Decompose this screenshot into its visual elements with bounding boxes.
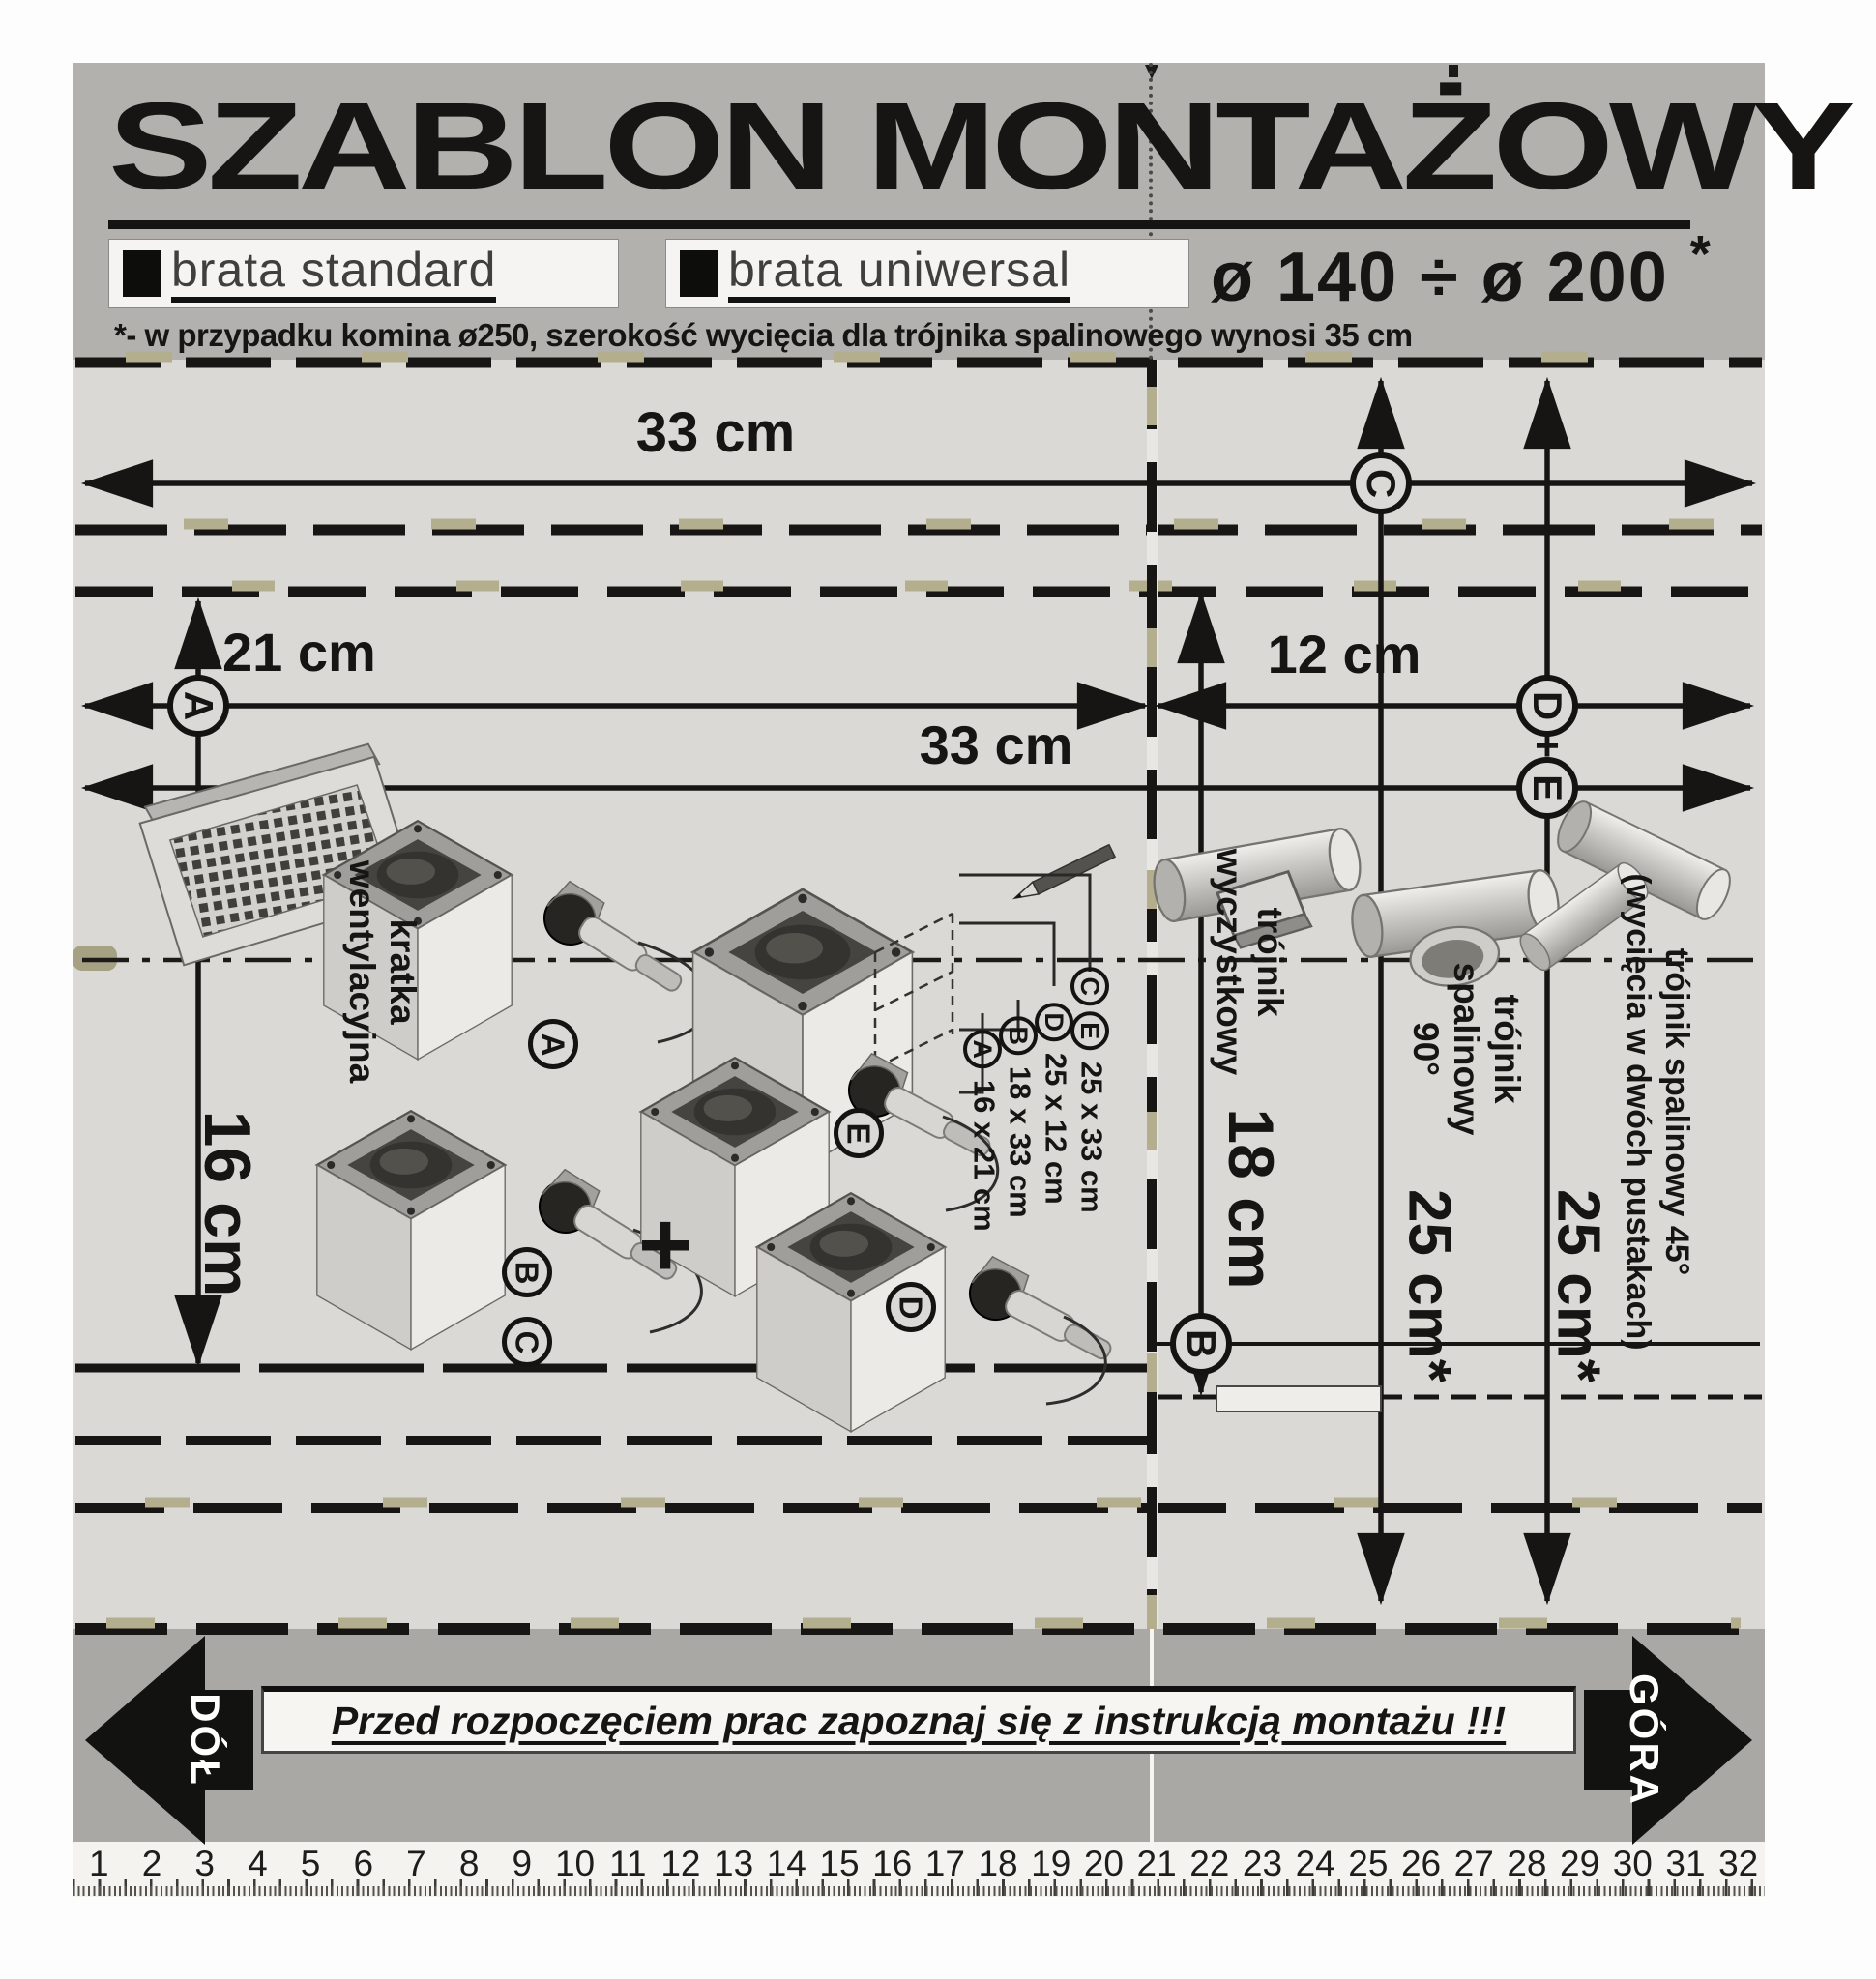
ruler-number: 25 bbox=[1342, 1843, 1395, 1883]
ruler-number: 27 bbox=[1448, 1843, 1501, 1883]
brand-logo-square bbox=[123, 250, 161, 297]
ruler-number: 31 bbox=[1659, 1843, 1713, 1883]
circled-letter: E bbox=[1527, 774, 1568, 801]
warning-banner: Przed rozpoczęciem prac zapoznaj się z i… bbox=[261, 1686, 1576, 1754]
cleanout-tee-label: trójnikwyczystkowy bbox=[1209, 849, 1290, 1075]
diameter-asterisk: * bbox=[1690, 225, 1713, 283]
circled-letter: A bbox=[538, 1033, 570, 1056]
ruler-numbers: 1234567891011121314151617181920212223242… bbox=[73, 1843, 1765, 1883]
cleanout-slot bbox=[1216, 1386, 1381, 1411]
footnote: *- w przypadku komina ø250, szerokość wy… bbox=[114, 317, 1413, 354]
ruler-number: 8 bbox=[443, 1843, 496, 1883]
ruler-number: 6 bbox=[337, 1843, 390, 1883]
angle-grinder-icon bbox=[960, 1254, 1123, 1377]
dimension-tee45-height: 25 cm* bbox=[1544, 1189, 1613, 1382]
ruler-number: 7 bbox=[390, 1843, 443, 1883]
ruler-number: 29 bbox=[1553, 1843, 1606, 1883]
circled-letter: C bbox=[1070, 967, 1109, 1005]
dimension-mid-width: 33 cm bbox=[851, 713, 1141, 776]
dimension-grille-height: 16 cm bbox=[190, 1111, 265, 1297]
circled-letter: D bbox=[1035, 1003, 1073, 1041]
dimension-top-width: 33 cm bbox=[522, 400, 909, 465]
mounting-template-sheet: SZABLON MONTAŻOWY brata standard brata u… bbox=[0, 0, 1876, 1979]
ruler-number: 3 bbox=[178, 1843, 231, 1883]
dimension-grille-width: 21 cm bbox=[222, 621, 376, 684]
up-arrow-label: GÓRA bbox=[1621, 1673, 1667, 1807]
block-label-e: E bbox=[834, 1108, 884, 1158]
ruler-number: 28 bbox=[1501, 1843, 1554, 1883]
circled-letter: B bbox=[512, 1261, 543, 1284]
circle-marker-b: B bbox=[1170, 1313, 1232, 1375]
brand-box-standard: brata standard bbox=[108, 239, 619, 308]
circled-letter: C bbox=[512, 1330, 543, 1353]
circled-letter: E bbox=[1070, 1011, 1109, 1050]
ruler-number: 24 bbox=[1289, 1843, 1342, 1883]
ruler-number: 20 bbox=[1077, 1843, 1130, 1883]
dimension-cleanout-height: 18 cm bbox=[1215, 1108, 1288, 1289]
block-label-c: C bbox=[502, 1317, 552, 1367]
brand-logo-square bbox=[680, 250, 718, 297]
circled-letter: D bbox=[895, 1295, 927, 1319]
cut-size-label: D 25 x 12 cm bbox=[1035, 1000, 1073, 1204]
brand-standard-label: brata standard bbox=[171, 245, 496, 304]
ruler-number: 19 bbox=[1024, 1843, 1077, 1883]
circled-letter: B bbox=[999, 1016, 1038, 1055]
chimney-block-bc-illustration bbox=[317, 1111, 505, 1350]
ruler-number: 16 bbox=[865, 1843, 919, 1883]
circle-marker-a: A bbox=[167, 675, 229, 737]
block-label-a: A bbox=[528, 1019, 578, 1069]
ruler-number: 12 bbox=[655, 1843, 708, 1883]
ruler-number: 22 bbox=[1183, 1843, 1236, 1883]
block-label-d: D bbox=[886, 1282, 936, 1332]
up-arrow bbox=[1584, 1636, 1752, 1845]
tee-45-label: trójnik spalinowy 45°(wycięcia w dwóch p… bbox=[1619, 873, 1696, 1350]
circle-marker-e: E bbox=[1516, 757, 1578, 819]
circled-letter: D bbox=[1527, 691, 1568, 720]
cut-size-label: CE 25 x 33 cm bbox=[1070, 964, 1109, 1212]
ruler-number: 17 bbox=[919, 1843, 972, 1883]
circle-marker-d: D bbox=[1516, 675, 1578, 737]
ruler-number: 4 bbox=[231, 1843, 284, 1883]
ruler-number: 21 bbox=[1130, 1843, 1184, 1883]
ruler-number: 2 bbox=[126, 1843, 179, 1883]
dimension-offset-right: 12 cm bbox=[1199, 623, 1489, 685]
circled-letter: B bbox=[1181, 1329, 1221, 1358]
diameter-range: ø 140 ÷ ø 200 * bbox=[1211, 224, 1752, 317]
plus-sign: + bbox=[638, 1192, 692, 1298]
ruler-number: 10 bbox=[548, 1843, 601, 1883]
circled-letter: A bbox=[178, 691, 219, 720]
vent-grille-label: kratkawentylacyjna bbox=[341, 860, 423, 1083]
ruler-number: 9 bbox=[496, 1843, 549, 1883]
ruler-number: 18 bbox=[972, 1843, 1025, 1883]
ruler-number: 30 bbox=[1606, 1843, 1659, 1883]
page-title: SZABLON MONTAŻOWY bbox=[108, 75, 1851, 218]
ruler-number: 11 bbox=[601, 1843, 655, 1883]
ruler-number: 26 bbox=[1394, 1843, 1448, 1883]
ruler-number: 32 bbox=[1712, 1843, 1765, 1883]
ruler-number: 5 bbox=[284, 1843, 337, 1883]
angle-grinder-icon bbox=[535, 879, 695, 1008]
ruler-number: 13 bbox=[707, 1843, 760, 1883]
cut-size-label: B 18 x 33 cm bbox=[999, 1013, 1038, 1217]
block-label-b: B bbox=[502, 1247, 552, 1297]
ruler-number: 1 bbox=[73, 1843, 126, 1883]
tee-90-label: trójnikspalinowy90° bbox=[1405, 963, 1527, 1136]
dimension-tee90-height: 25 cm* bbox=[1395, 1189, 1464, 1382]
circled-letter: C bbox=[1361, 469, 1401, 498]
diameter-range-value: ø 140 ÷ ø 200 bbox=[1211, 239, 1669, 316]
ruler-ticks-minor bbox=[73, 1886, 1765, 1896]
circle-marker-c: C bbox=[1350, 452, 1412, 514]
down-arrow-label: DÓŁ bbox=[182, 1693, 228, 1788]
brand-box-universal: brata uniwersal bbox=[665, 239, 1189, 308]
ruler-number: 23 bbox=[1236, 1843, 1289, 1883]
ruler-number: 15 bbox=[813, 1843, 866, 1883]
ruler-number: 14 bbox=[760, 1843, 813, 1883]
brand-universal-label: brata uniwersal bbox=[728, 245, 1070, 304]
warning-text: Przed rozpoczęciem prac zapoznaj się z i… bbox=[332, 1699, 1506, 1744]
circled-letter: E bbox=[842, 1122, 874, 1144]
circled-letter: A bbox=[963, 1030, 1002, 1068]
cut-size-label: A 16 x 21 cm bbox=[963, 1027, 1002, 1231]
